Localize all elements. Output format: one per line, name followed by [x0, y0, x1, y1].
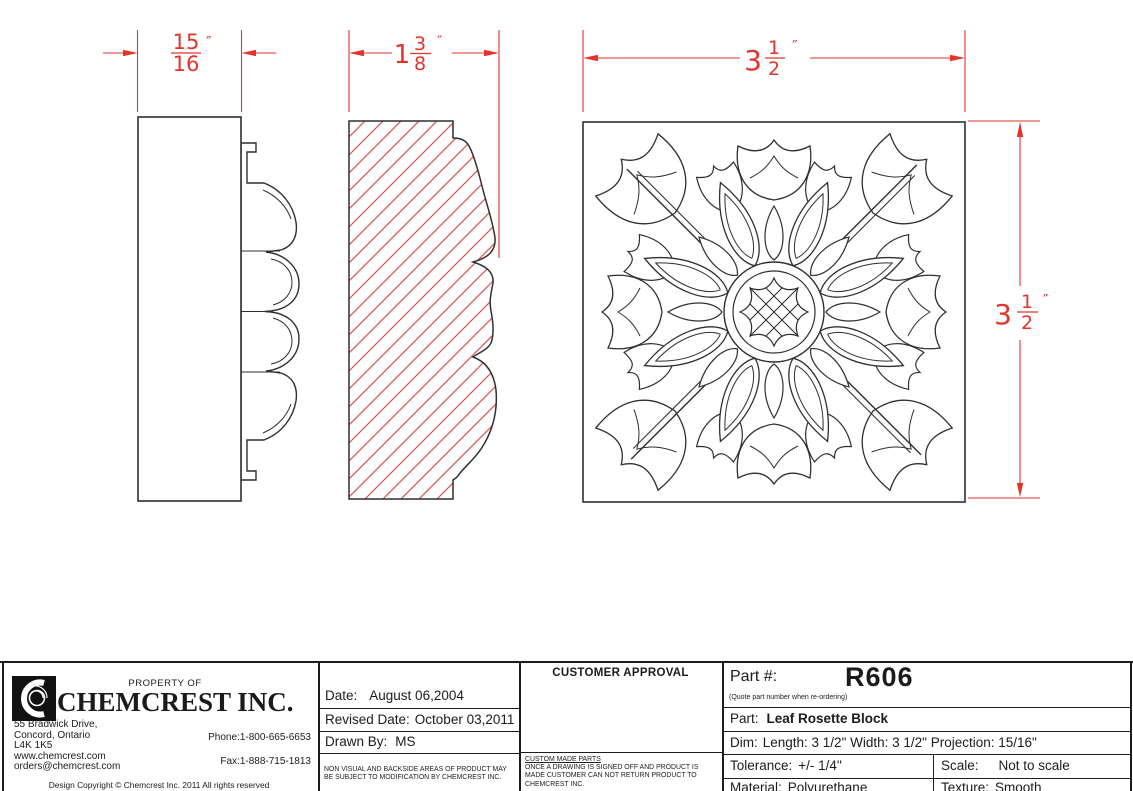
custom-parts-note: CUSTOM MADE PARTS ONCE A DRAWING IS SIGN… — [525, 756, 719, 789]
chemcrest-logo — [12, 676, 58, 723]
dim-side-width-numerator: 15 — [173, 30, 200, 54]
phone-label: Phone: — [208, 732, 240, 743]
customer-approval-title: CUSTOMER APPROVAL — [519, 667, 722, 679]
tolerance-value: +/- 1/4" — [798, 758, 841, 773]
material-row: Material:Polyurethane — [730, 780, 867, 791]
part-row-line-4 — [722, 778, 1130, 779]
dim-section-depth-unit: ″ — [437, 34, 442, 50]
drawing-area: 15 16 ″ 1 3 8 ″ 3 1 — [0, 0, 1133, 660]
part-name-row: Part:Leaf Rosette Block — [730, 711, 888, 726]
reorder-note: (Quote part number when re-ordering) — [729, 694, 847, 701]
dim-section-depth-denominator: 8 — [414, 53, 426, 75]
drawn-by-value: MS — [395, 734, 415, 749]
date-row: Date:August 06,2004 — [325, 688, 464, 703]
rosette-center-boss — [724, 262, 824, 362]
divider-company-revision — [318, 661, 320, 791]
titleblock-right-border — [1130, 661, 1132, 791]
dim-front-height-denominator: 2 — [1021, 312, 1033, 334]
drawn-by-row: Drawn By:MS — [325, 734, 416, 749]
company-name: CHEMCREST INC. — [57, 687, 294, 718]
dim-front-width: 3 1 2 ″ — [583, 30, 965, 112]
section-view — [349, 121, 496, 499]
revised-date-row: Revised Date:October 03,2011 — [325, 712, 514, 727]
part-number-label: Part #: — [730, 668, 777, 686]
divider-scale-texture — [933, 754, 934, 791]
part-dim-label: Dim: — [730, 735, 758, 750]
date-label: Date: — [325, 688, 357, 703]
dim-front-height: 3 1 2 ″ — [968, 121, 1049, 498]
custom-parts-note-title: CUSTOM MADE PARTS — [525, 756, 601, 763]
date-value: August 06,2004 — [369, 688, 464, 703]
texture-label: Texture: — [941, 780, 989, 791]
part-dim-value: Length: 3 1/2" Width: 3 1/2" Projection:… — [763, 735, 1037, 750]
scale-row: Scale:Not to scale — [941, 758, 1070, 773]
revision-row-line-3 — [318, 753, 519, 754]
titleblock-left-border — [2, 661, 4, 791]
scale-value: Not to scale — [999, 758, 1070, 773]
dim-section-depth-whole: 1 — [394, 40, 411, 70]
dim-front-height-unit: ″ — [1043, 291, 1049, 309]
dim-front-width-whole: 3 — [744, 44, 762, 77]
dim-side-width-unit: ″ — [206, 33, 212, 51]
scale-label: Scale: — [941, 758, 979, 773]
approval-note-line — [519, 752, 722, 753]
part-row-line-3 — [722, 754, 1130, 755]
texture-row: Texture:Smooth — [941, 780, 1042, 791]
part-row-line-2 — [722, 731, 1130, 732]
divider-approval-part — [722, 661, 724, 791]
side-block-face — [138, 117, 241, 501]
revision-row-line-1 — [318, 708, 519, 709]
revised-date-label: Revised Date: — [325, 712, 410, 727]
copyright-notice: Design Copyright © Chemcrest Inc. 2011 A… — [0, 780, 318, 790]
revised-date-value: October 03,2011 — [415, 712, 515, 727]
side-view — [138, 117, 299, 501]
material-label: Material: — [730, 780, 782, 791]
fax-label: Fax: — [220, 756, 239, 767]
dim-side-width: 15 16 ″ — [103, 30, 276, 112]
address-line: orders@chemcrest.com — [14, 762, 120, 773]
part-dim-row: Dim:Length: 3 1/2" Width: 3 1/2" Project… — [730, 735, 1037, 750]
part-name-value: Leaf Rosette Block — [767, 711, 889, 726]
revision-disclaimer: NON VISUAL AND BACKSIDE AREAS OF PRODUCT… — [324, 766, 514, 782]
texture-value: Smooth — [995, 780, 1042, 791]
address-line: 55 Bradwick Drive, — [14, 720, 120, 731]
part-number-value: R606 — [845, 662, 914, 693]
rosette — [590, 128, 959, 497]
tolerance-row: Tolerance:+/- 1/4" — [730, 758, 842, 773]
revision-row-line-2 — [318, 731, 519, 732]
section-hatch — [349, 121, 496, 499]
drawing-sheet: 15 16 ″ 1 3 8 ″ 3 1 — [0, 0, 1133, 791]
dim-front-width-unit: ″ — [792, 37, 798, 55]
company-fax: Fax:1-888-715-1813 — [196, 756, 311, 767]
dim-section-depth-numerator: 3 — [414, 33, 426, 55]
dim-front-height-numerator: 1 — [1021, 291, 1033, 313]
phone-value: 1-800-665-6653 — [240, 732, 311, 743]
part-row-line-1 — [722, 707, 1130, 708]
divider-revision-approval — [519, 661, 521, 791]
part-name-label: Part: — [730, 711, 759, 726]
drawn-by-label: Drawn By: — [325, 734, 387, 749]
front-view — [583, 122, 965, 502]
dim-front-width-denominator: 2 — [768, 58, 780, 80]
custom-parts-note-body: ONCE A DRAWING IS SIGNED OFF AND PRODUCT… — [525, 764, 698, 787]
tolerance-label: Tolerance: — [730, 758, 792, 773]
titleblock-top-border — [0, 661, 1133, 663]
company-address: 55 Bradwick Drive, Concord, Ontario L4K … — [14, 720, 120, 773]
fax-value: 1-888-715-1813 — [240, 756, 311, 767]
dim-front-height-whole: 3 — [994, 298, 1012, 331]
company-phone: Phone:1-800-665-6653 — [196, 732, 311, 743]
dim-front-width-numerator: 1 — [768, 37, 780, 59]
material-value: Polyurethane — [788, 780, 868, 791]
title-block: PROPERTY OF CHEMCREST INC. 55 Bradwick D… — [0, 661, 1133, 791]
dim-side-width-denominator: 16 — [173, 52, 200, 76]
